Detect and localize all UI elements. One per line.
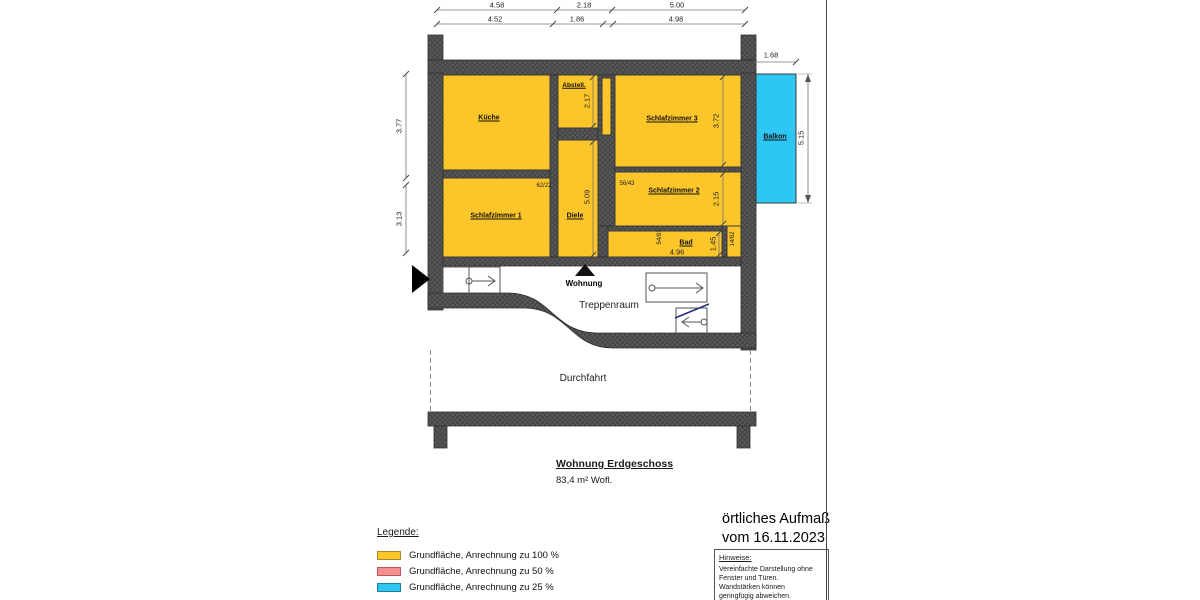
durchfahrt-label: Durchfahrt (560, 374, 607, 384)
legend-heading: Legende: (377, 527, 559, 538)
notes-box: Hinweise: Vereinfachte Darstellung ohne … (714, 549, 829, 600)
wall-left (428, 73, 443, 310)
wall-top-right-stub (741, 35, 756, 62)
dim-balkon-height: 5.15 (797, 131, 805, 146)
plan-title: Wohnung Erdgeschoss (556, 458, 673, 470)
legend-label-50: Grundfläche, Anrechnung zu 50 % (409, 566, 554, 577)
room-label-diele: Diele (567, 213, 584, 220)
room-label-bad: Bad (679, 240, 692, 247)
room-strip-area (602, 78, 611, 135)
wall-abstell-diele (558, 128, 598, 140)
building-entry-arrow (412, 265, 430, 293)
survey-line2: vom 16.11.2023 (722, 529, 830, 548)
wall-bottom-right-leg (737, 426, 750, 448)
dim-top-inner-2: 1.86 (570, 15, 585, 23)
room-diele-area (558, 140, 598, 257)
sheet-border-line (826, 0, 827, 600)
wall-top (428, 60, 756, 75)
dim-abstell-depth: 2.17 (583, 94, 591, 109)
dim-bad-depth: 1.45 (709, 237, 717, 252)
dim-balkon-width: 1.68 (764, 51, 779, 59)
room-label-schlafzimmer2: Schlafzimmer 2 (648, 188, 699, 195)
plan-subtitle: 83,4 m² Wofl. (556, 475, 673, 486)
room-bad-area (608, 231, 722, 257)
legend-swatch-25-icon (377, 583, 401, 592)
floor-plan-sheet: 4.58 2.18 5.00 4.52 1.86 4.98 3.77 3.13 … (0, 0, 1200, 600)
legend: Legende: Grundfläche, Anrechnung zu 100 … (377, 527, 559, 595)
legend-item-25: Grundfläche, Anrechnung zu 25 % (377, 579, 559, 595)
mark-sz2: 56/43 (619, 181, 634, 187)
wall-mid-column (550, 75, 558, 257)
dim-diele-length: 5.09 (583, 190, 591, 205)
dim-top-inner-3: 4.98 (669, 15, 684, 23)
wohnung-entry-label: Wohnung (566, 280, 603, 288)
room-kueche-area (443, 75, 550, 170)
dim-top-outer-2: 2.18 (577, 1, 592, 9)
wall-rooms-bottom (443, 257, 741, 266)
dim-top-outer-3: 5.00 (670, 1, 685, 9)
wall-durchfahrt-bottom (428, 412, 756, 426)
dim-left-upper: 3.77 (395, 119, 403, 134)
treppenraum-label: Treppenraum (579, 301, 639, 311)
room-label-schlafzimmer3: Schlafzimmer 3 (646, 116, 697, 123)
dim-top-inner-1: 4.52 (488, 15, 503, 23)
legend-swatch-100-icon (377, 551, 401, 560)
legend-swatch-50-icon (377, 567, 401, 576)
notes-body: Vereinfachte Darstellung ohne Fenster un… (719, 565, 819, 600)
legend-label-25: Grundfläche, Anrechnung zu 25 % (409, 582, 554, 593)
dim-sz2-depth: 2.15 (712, 192, 720, 207)
wall-sz3-sz2 (615, 167, 741, 172)
mark-bad: 54/81 (657, 229, 663, 244)
room-label-balkon: Balkon (763, 134, 786, 141)
wall-right (741, 73, 756, 350)
room-label-kueche: Küche (478, 115, 499, 122)
dim-top-outer-1: 4.58 (490, 1, 505, 9)
legend-item-50: Grundfläche, Anrechnung zu 50 % (377, 563, 559, 579)
room-label-schlafzimmer1: Schlafzimmer 1 (470, 213, 521, 220)
stair-cut-line (675, 304, 709, 318)
legend-label-100: Grundfläche, Anrechnung zu 100 % (409, 550, 559, 561)
dim-bad-width: 4.96 (670, 248, 685, 256)
mark-bad-right: 14/62 (730, 231, 736, 246)
notes-heading: Hinweise: (719, 553, 825, 562)
room-label-abstell: Abstell. (562, 83, 585, 90)
wall-mid-block-lower (598, 226, 608, 257)
legend-item-100: Grundfläche, Anrechnung zu 100 % (377, 547, 559, 563)
survey-line1: örtliches Aufmaß (722, 510, 830, 529)
wall-top-left-stub (428, 35, 443, 62)
dim-left-lower: 3.13 (395, 212, 403, 227)
wall-bad-right-stub (722, 226, 727, 257)
mark-sz1: 62/22 (536, 183, 551, 189)
wall-kueche-sz1 (443, 170, 550, 178)
wall-bottom-left-leg (434, 426, 447, 448)
survey-note: örtliches Aufmaß vom 16.11.2023 (722, 510, 830, 548)
dim-sz3-depth: 3.72 (712, 114, 720, 129)
title-block: Wohnung Erdgeschoss 83,4 m² Wofl. (556, 458, 673, 486)
